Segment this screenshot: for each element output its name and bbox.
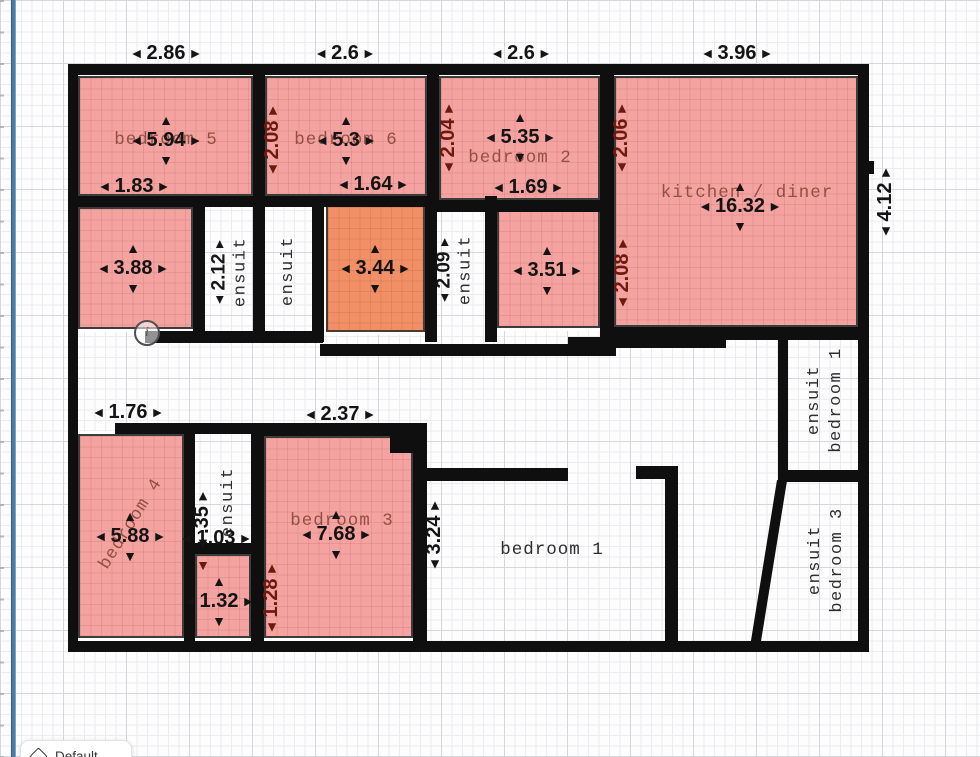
arrow-left-icon: ◄ xyxy=(438,292,452,305)
room-label-bedroom-1: bedroom 1 xyxy=(500,540,604,560)
room-label-ensuit-1: ◄ 2.12 ► ensuit xyxy=(210,237,253,307)
wall-outer-top[interactable] xyxy=(68,64,868,75)
dim-hall-width[interactable]: ◄ 1.76 ► xyxy=(92,402,165,422)
wall-ensuit2-room344[interactable] xyxy=(312,196,324,342)
arrow-left-icon: ◄ xyxy=(213,294,227,307)
arrow-right-icon: ► xyxy=(195,489,209,503)
default-mode-chip[interactable]: Default xyxy=(20,740,132,757)
arrow-right-icon: ► xyxy=(768,199,782,213)
arrow-down-icon: ▼ xyxy=(126,281,140,295)
wall-ensuitb1-ensuitb3[interactable] xyxy=(778,470,868,482)
arrow-left-icon: ◄ xyxy=(339,261,353,275)
diamond-icon xyxy=(29,747,47,757)
wall-ensuit1-ensuit2[interactable] xyxy=(253,196,265,342)
arrow-right-icon: ► xyxy=(238,531,252,545)
arrow-right-icon: ► xyxy=(363,133,377,147)
dim-bedroom3-left-height[interactable]: ◄ 1.28 ► xyxy=(261,562,281,635)
dim-bedroom5-area[interactable]: ▲ ◄5.94► ▼ xyxy=(130,110,203,170)
room-label-ensuit-2: ensuit xyxy=(278,236,300,306)
arrow-left-icon: ◄ xyxy=(265,162,279,176)
dim-bedroom2-left-height[interactable]: ◄ 2.04 ► xyxy=(438,102,458,175)
arrow-right-icon: ► xyxy=(614,102,628,116)
arrow-left-icon: ◄ xyxy=(97,261,111,275)
room-label-ensuit-3: ◄ 2.09 ► ensuit xyxy=(435,235,478,305)
arrow-right-icon: ► xyxy=(152,529,166,543)
arrow-up-icon: ▲ xyxy=(368,241,382,255)
arrow-up-icon: ▲ xyxy=(540,243,554,257)
arrow-left-icon: ◄ xyxy=(511,263,525,277)
arrow-left-icon: ◄ xyxy=(615,295,629,309)
arrow-right-icon: ► xyxy=(569,263,583,277)
arrow-right-icon: ► xyxy=(188,46,202,60)
dim-ensuit-bottom-width[interactable]: ◄ .35 ► xyxy=(192,489,212,551)
dim-bedroom6-top-width[interactable]: ◄ 2.6 ► xyxy=(314,43,376,63)
wall-ensuit3-room351[interactable] xyxy=(485,196,497,342)
arrow-left-icon: ◄ xyxy=(264,620,278,634)
arrow-down-icon: ▼ xyxy=(123,549,137,563)
dim-bedroom1-left-height[interactable]: ◄ 3.24 ► xyxy=(424,499,444,572)
floorplan-canvas: bedroom 5 bedroom 6 bedroom 2 kitchen / … xyxy=(0,0,980,757)
vertical-guide-line xyxy=(11,0,16,757)
dim-bedroom5-top-width[interactable]: ◄ 2.86 ► xyxy=(130,43,203,63)
arrow-left-icon: ◄ xyxy=(314,46,328,60)
arrow-right-icon: ► xyxy=(538,46,552,60)
arrow-left-icon: ◄ xyxy=(614,160,628,174)
arrow-up-icon: ▲ xyxy=(126,241,140,255)
wall-bedroom2-bottom[interactable] xyxy=(427,200,614,212)
arrow-left-icon: ◄ xyxy=(92,405,106,419)
dim-bedroom2-inner-width[interactable]: ◄ 1.69 ► xyxy=(492,177,565,197)
dim-kitchen-left-upper-height[interactable]: ◄ 2.06 ► xyxy=(611,102,631,175)
arrow-left-icon: ◄ xyxy=(701,46,715,60)
arrow-left-icon: ◄ xyxy=(304,407,318,421)
arrow-right-icon: ► xyxy=(362,407,376,421)
wall-bedroom1-right[interactable] xyxy=(665,466,678,652)
arrow-right-icon: ► xyxy=(362,46,376,60)
arrow-up-icon: ▲ xyxy=(513,110,527,124)
wall-bedroom6-bottom[interactable] xyxy=(253,196,439,207)
arrow-right-icon: ► xyxy=(264,562,278,576)
wall-outer-left[interactable] xyxy=(68,64,78,652)
dim-room132-area[interactable]: ▲ ◄1.32► ▼ xyxy=(183,571,256,631)
dim-room388-area[interactable]: ▲ ◄3.88► ▼ xyxy=(97,238,170,298)
arrow-left-icon: ◄ xyxy=(315,133,329,147)
arrow-left-icon: ◄ xyxy=(94,529,108,543)
arrow-up-icon: ▲ xyxy=(733,179,747,193)
arrow-right-icon: ► xyxy=(358,527,372,541)
arrow-left-icon: ◄ xyxy=(698,199,712,213)
wall-room388-ensuit1[interactable] xyxy=(193,196,205,342)
dim-kitchen-area[interactable]: ▲ ◄16.32► ▼ xyxy=(698,176,782,236)
arrow-down-icon: ▼ xyxy=(329,547,343,561)
dim-bedroom2-top-width[interactable]: ◄ 2.6 ► xyxy=(490,43,552,63)
wall-bedroom5-bottom[interactable] xyxy=(68,196,265,207)
arrow-right-icon: ► xyxy=(438,236,452,249)
arrow-down-icon: ▼ xyxy=(159,153,173,167)
wall-hall-upper-a[interactable] xyxy=(145,331,323,343)
arrow-up-icon: ▲ xyxy=(212,574,226,588)
arrow-right-icon: ► xyxy=(878,166,892,180)
arrow-left-icon: ◄ xyxy=(490,46,504,60)
dim-room351-area[interactable]: ▲ ◄3.51► ▼ xyxy=(511,240,584,300)
arrow-right-icon: ► xyxy=(542,130,556,144)
arrow-right-icon: ► xyxy=(427,499,441,513)
arrow-left-icon: ◄ xyxy=(183,594,197,608)
arrow-left-icon: ◄ xyxy=(484,130,498,144)
arrow-right-icon: ► xyxy=(441,102,455,116)
arrow-left-icon: ◄ xyxy=(98,179,112,193)
dim-ensuit3-width[interactable]: ◄ 2.09 ► xyxy=(435,236,456,305)
arrow-down-icon: ▼ xyxy=(212,614,226,628)
arrow-up-icon: ▲ xyxy=(329,507,343,521)
dim-kitchen-left-lower-height[interactable]: ◄ 2.08 ► xyxy=(612,237,632,310)
arrow-left-icon: ◄ xyxy=(130,133,144,147)
arrow-down-icon: ▼ xyxy=(368,281,382,295)
ruler-ticks xyxy=(0,0,4,757)
arrow-right-icon: ► xyxy=(241,594,255,608)
wall-ensuitb1-left[interactable] xyxy=(778,338,788,479)
arrow-up-icon: ▲ xyxy=(159,113,173,127)
dim-bedroom6-left-height[interactable]: ◄ 2.08 ► xyxy=(262,104,282,177)
arrow-down-icon: ▼ xyxy=(733,219,747,233)
wall-kitchen-bottom[interactable] xyxy=(600,327,868,340)
dim-kitchen-top-width[interactable]: ◄ 3.96 ► xyxy=(701,43,774,63)
wall-bedroom1-top[interactable] xyxy=(425,468,568,481)
arrow-down-icon: ▼ xyxy=(540,283,554,297)
arrow-left-icon: ◄ xyxy=(492,180,506,194)
info-icon[interactable]: i xyxy=(134,320,160,346)
arrow-right-icon: ► xyxy=(188,133,202,147)
arrow-right-icon: ► xyxy=(550,180,564,194)
arrow-right-icon: ► xyxy=(265,104,279,118)
arrow-right-icon: ► xyxy=(150,405,164,419)
arrow-right-icon: ► xyxy=(213,238,227,251)
arrow-left-icon: ◄ xyxy=(337,177,351,191)
wall-ensuitb3-diagonal[interactable] xyxy=(750,480,786,645)
chip-label: Default xyxy=(55,749,98,757)
dim-bedroom2-area[interactable]: ▲ ◄5.35► ▼ xyxy=(484,107,557,167)
wall-outer-right[interactable] xyxy=(858,64,869,652)
arrow-left-icon: ◄ xyxy=(427,557,441,571)
dim-bedroom3-area[interactable]: ▲ ◄7.68► ▼ xyxy=(300,504,373,564)
arrow-left-icon: ◄ xyxy=(441,160,455,174)
arrow-right-icon: ► xyxy=(156,179,170,193)
dim-bedroom3-top-width[interactable]: ◄ 2.37 ► xyxy=(304,404,377,424)
room-label-ensuit-bedroom-3: ensuit bedroom 3 xyxy=(805,507,849,612)
arrow-right-icon: ► xyxy=(395,177,409,191)
arrow-right-icon: ► xyxy=(397,261,411,275)
arrow-down-icon: ▼ xyxy=(513,150,527,164)
dim-bedroom6-area[interactable]: ▲ ◄5.3► ▼ xyxy=(315,110,377,170)
arrow-left-icon: ◄ xyxy=(300,527,314,541)
arrow-left-icon: ◄ xyxy=(878,224,892,238)
dim-room344-area[interactable]: ▲ ◄3.44► ▼ xyxy=(339,238,412,298)
wall-kitchen-right-bump[interactable] xyxy=(858,161,874,174)
dim-bedroom5-inner-width[interactable]: ◄ 1.83 ► xyxy=(98,176,171,196)
dim-bedroom4-area[interactable]: ▲ ◄5.88► ▼ xyxy=(94,506,167,566)
arrow-up-icon: ▲ xyxy=(123,509,137,523)
arrow-right-icon: ► xyxy=(759,46,773,60)
room-label-ensuit-bedroom-1: ensuit bedroom 1 xyxy=(804,347,848,452)
arrow-up-icon: ▲ xyxy=(339,113,353,127)
dim-kitchen-right-height[interactable]: ◄ 4.12 ► xyxy=(875,166,895,239)
arrow-down-icon: ▼ xyxy=(339,153,353,167)
arrow-right-icon: ► xyxy=(155,261,169,275)
arrow-left-icon: ◄ xyxy=(195,537,209,551)
arrow-left-icon: ◄ xyxy=(130,46,144,60)
room132-resize-arrow-icon: ▼ xyxy=(196,558,210,572)
dim-bedroom6-inner-width[interactable]: ◄ 1.64 ► xyxy=(337,174,410,194)
arrow-right-icon: ► xyxy=(615,237,629,251)
dim-ensuit1-width[interactable]: ◄ 2.12 ► xyxy=(210,238,231,307)
